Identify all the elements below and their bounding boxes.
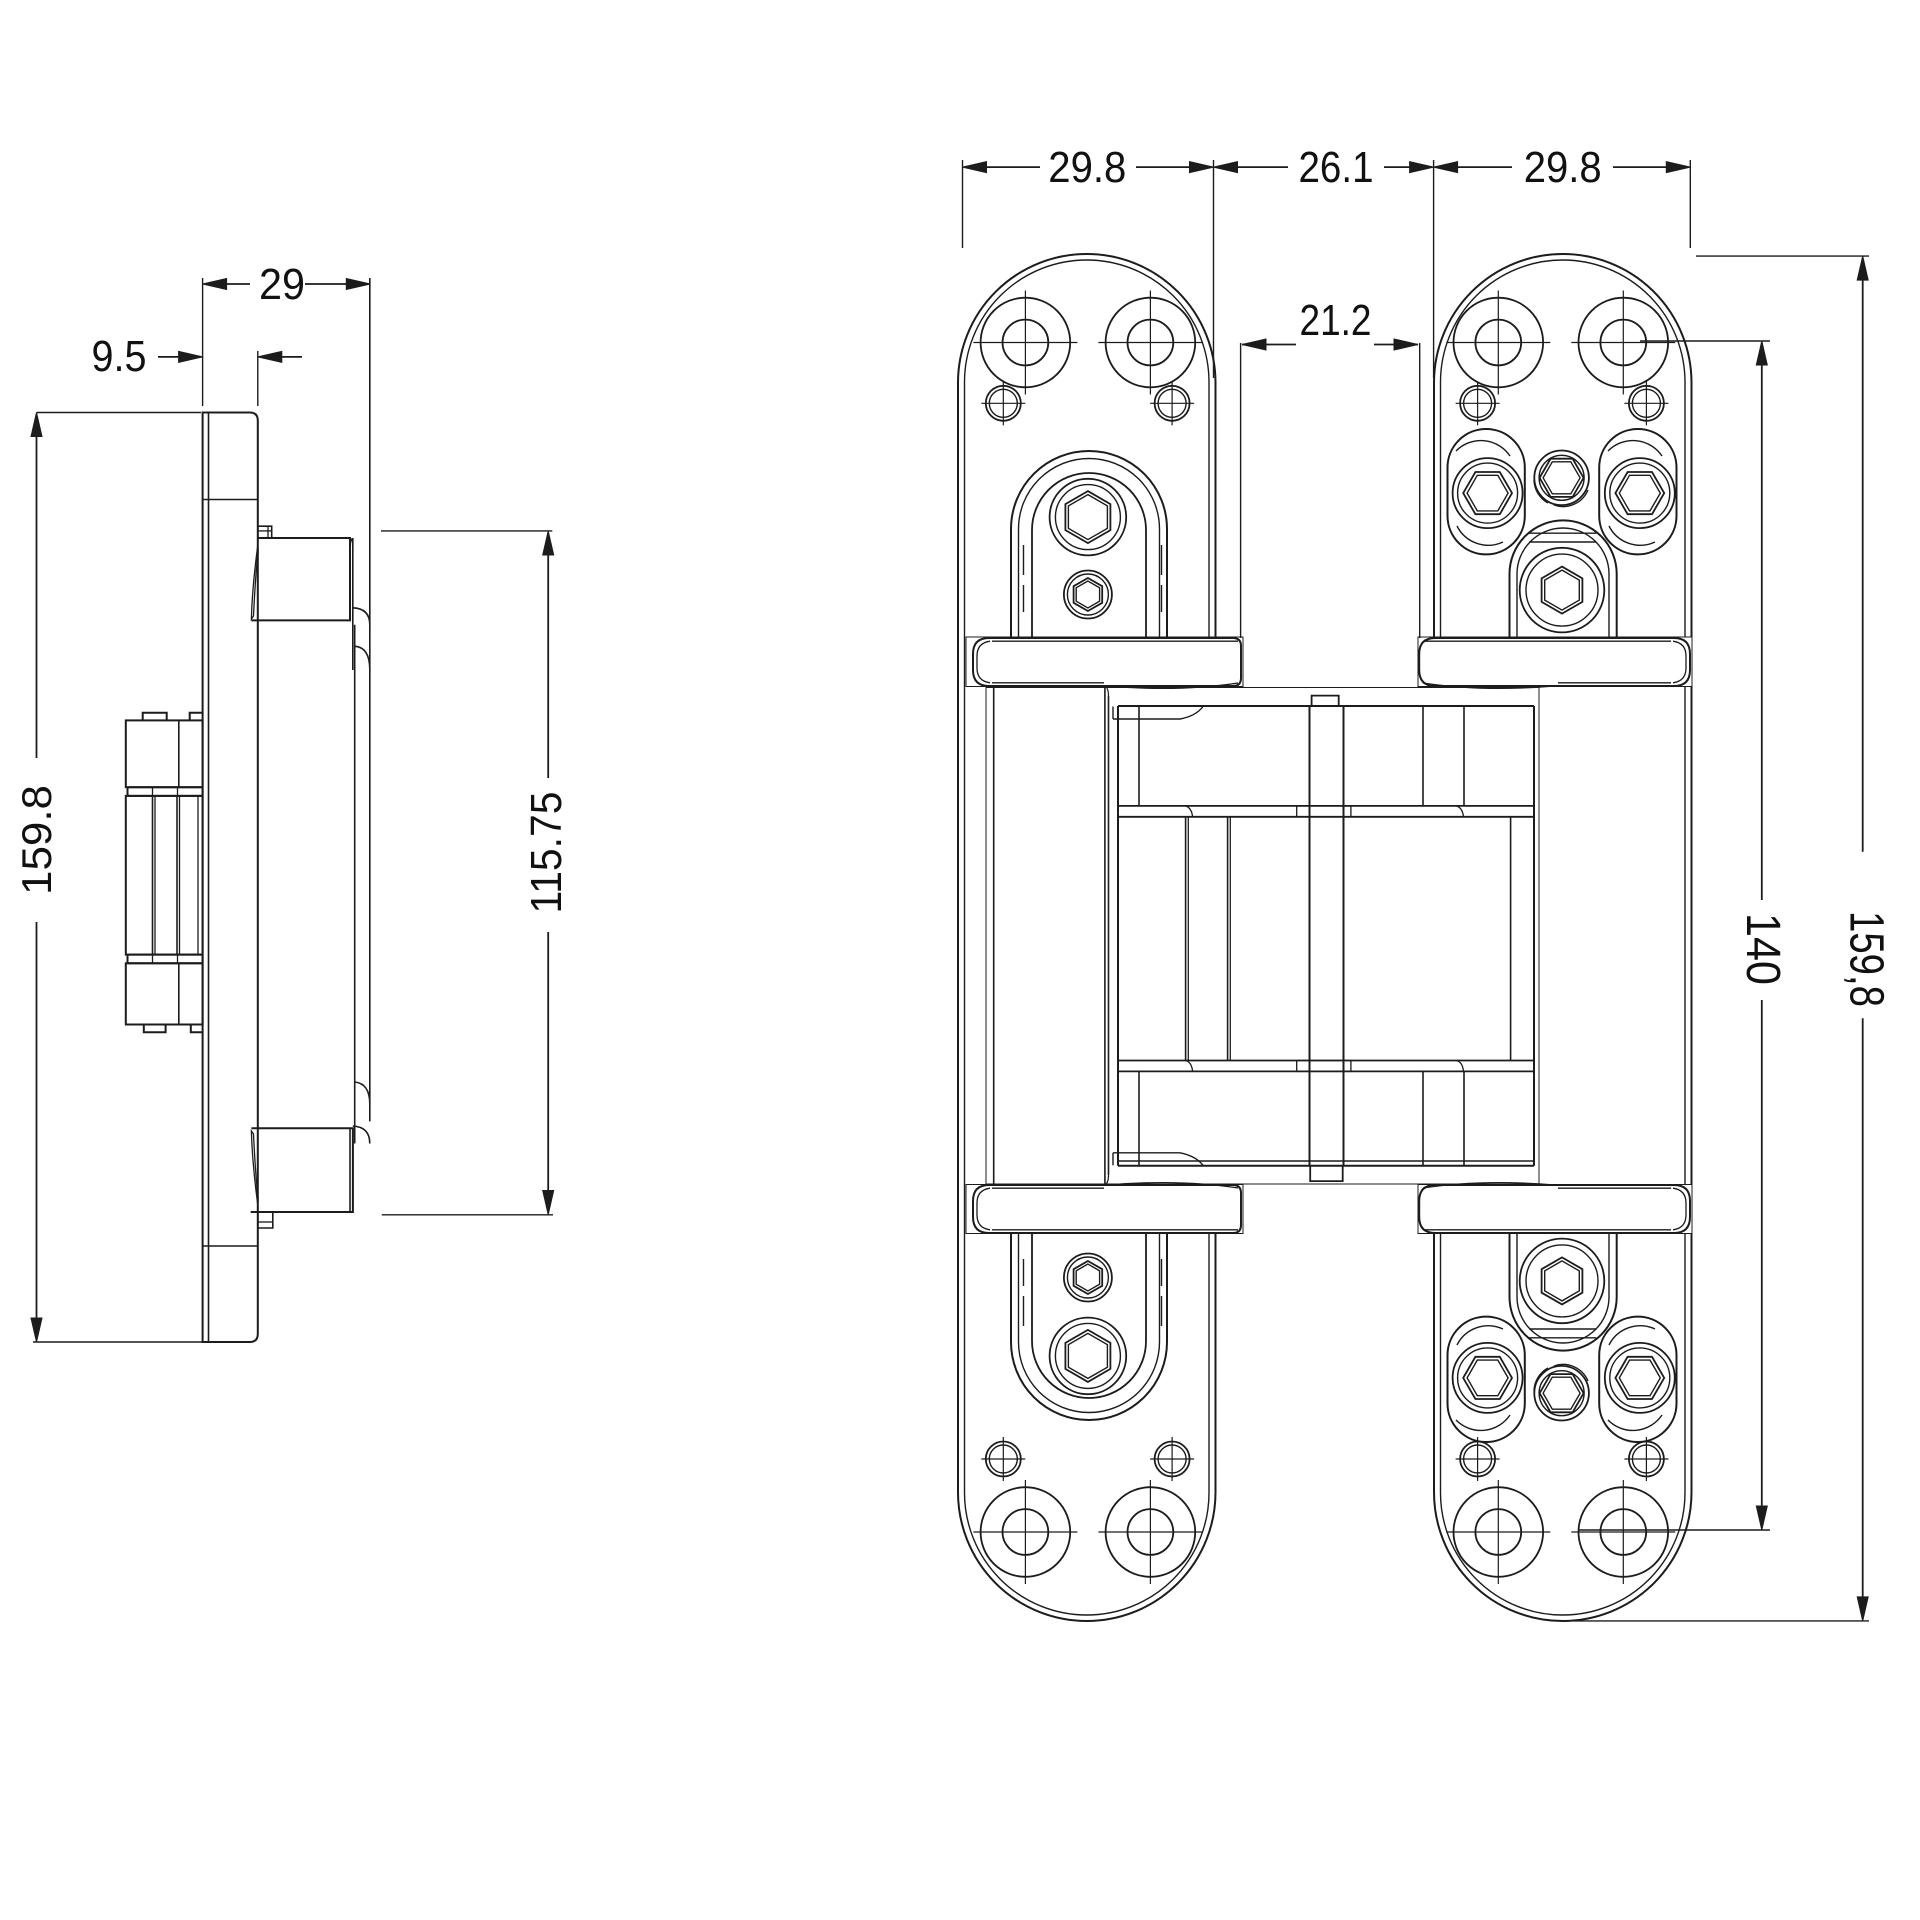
svg-text:29.8: 29.8 [1048, 143, 1126, 192]
svg-text:29.8: 29.8 [1524, 143, 1602, 192]
svg-text:140: 140 [1736, 913, 1789, 985]
svg-text:9.5: 9.5 [92, 332, 147, 381]
svg-text:26.1: 26.1 [1299, 143, 1374, 192]
svg-text:21.2: 21.2 [1300, 296, 1372, 345]
svg-text:159.8: 159.8 [13, 785, 60, 895]
svg-text:159,8: 159,8 [1840, 911, 1893, 1007]
svg-text:115.75: 115.75 [522, 792, 571, 914]
svg-text:29: 29 [259, 260, 305, 309]
